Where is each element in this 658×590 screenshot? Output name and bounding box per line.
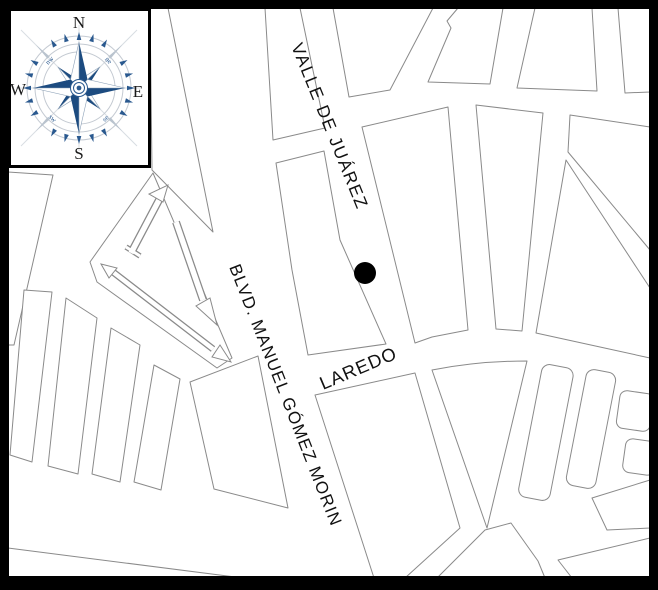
compass-label-south: S <box>74 144 83 163</box>
compass-box: N S W E nw ne sw se <box>10 10 150 167</box>
compass-label-east: E <box>133 82 143 101</box>
compass-label-north: N <box>73 13 85 32</box>
compass-hub <box>71 80 88 97</box>
city-block <box>616 390 655 432</box>
compass-label-west: W <box>10 80 27 99</box>
map-viewport: VALLE DE JUÁREZ LAREDO BLVD. MANUEL GÓME… <box>0 0 658 590</box>
map-canvas: VALLE DE JUÁREZ LAREDO BLVD. MANUEL GÓME… <box>0 0 658 590</box>
location-marker-dot <box>354 262 376 284</box>
